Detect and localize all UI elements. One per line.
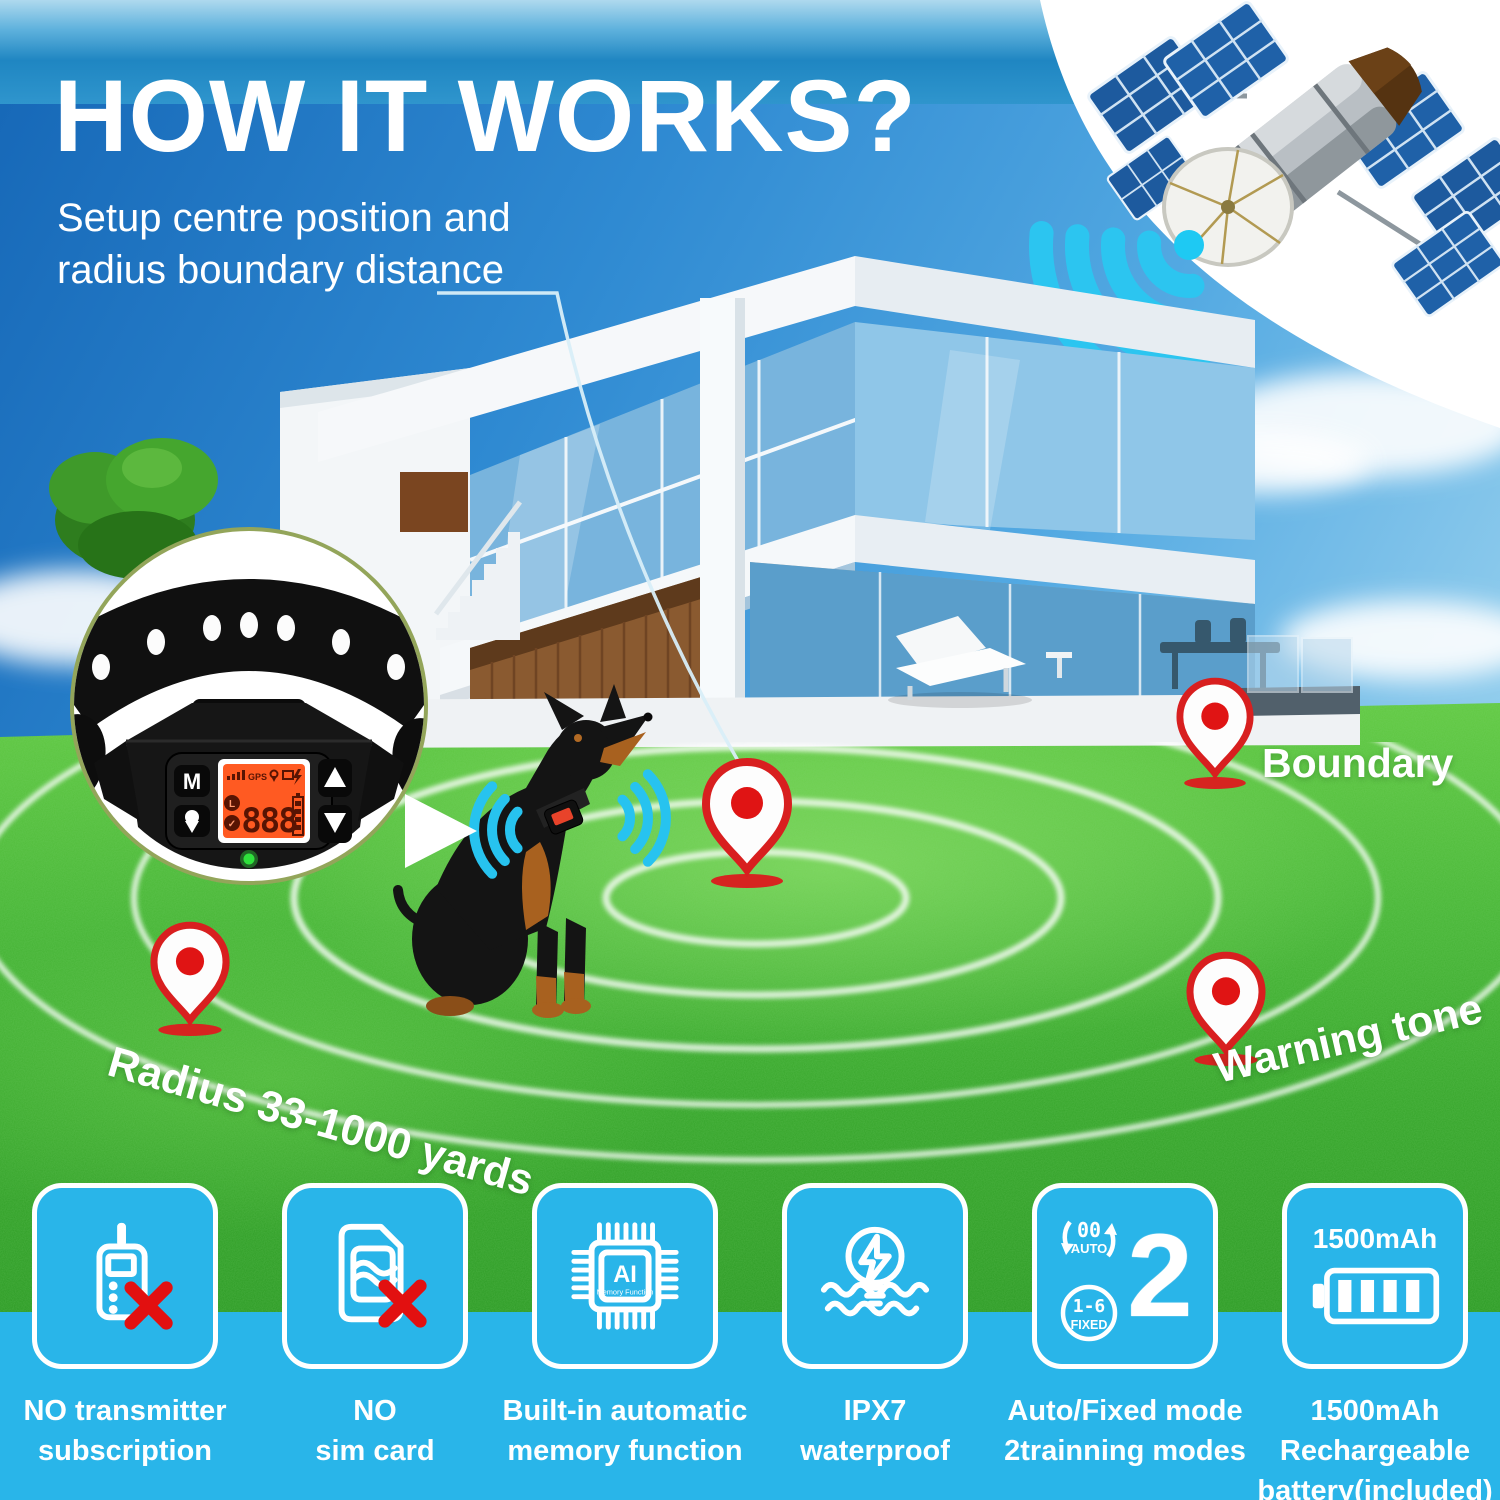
svg-text:✓: ✓ — [228, 819, 236, 830]
centre-position-pin — [706, 762, 788, 888]
feature-label: Auto/Fixed mode 2trainning modes — [1004, 1391, 1246, 1471]
feature-label: IPX7 waterproof — [800, 1391, 950, 1471]
feature-no-sim-card: NO sim card — [250, 1183, 500, 1500]
feature-label: Built-in automatic memory function — [503, 1391, 748, 1471]
feature-tile: 1500mAh — [1282, 1183, 1468, 1369]
radius-pin — [154, 925, 226, 1036]
feature-tile — [32, 1183, 218, 1369]
subtitle-line: radius boundary distance — [57, 244, 511, 296]
red-x-icon — [131, 1288, 166, 1323]
no-sim-card-icon — [316, 1217, 434, 1335]
feature-label: NO transmitter subscription — [23, 1391, 226, 1471]
chip-ai-label: AI — [613, 1262, 637, 1288]
feature-training-modes: 00 AUTO 1-6 FIXED 2 Auto/Fixed mode 2tra… — [1000, 1183, 1250, 1500]
lcd-digits: 888 — [241, 801, 297, 841]
lcd-gps-label: GPS — [248, 772, 267, 782]
boundary-pin — [1180, 681, 1250, 789]
waterproof-bulb-icon — [816, 1217, 934, 1335]
modes-icon: 00 AUTO 1-6 FIXED 2 — [1057, 1207, 1193, 1345]
modes-count: 2 — [1127, 1223, 1193, 1329]
receiver-device: M GPS L ✓ 888 — [94, 699, 404, 869]
deck-glass-railing — [1248, 636, 1352, 692]
fixed-mode-badge-icon: 1-6 FIXED — [1057, 1281, 1121, 1345]
feature-list: NO transmitter subscription NO sim card — [0, 1183, 1500, 1500]
feature-label: NO sim card — [315, 1391, 434, 1471]
feature-tile: 00 AUTO 1-6 FIXED 2 — [1032, 1183, 1218, 1369]
feature-battery: 1500mAh 1500mAh Rechargeable battery(inc… — [1250, 1183, 1500, 1500]
page-subtitle: Setup centre position and radius boundar… — [57, 192, 511, 296]
feature-tile — [282, 1183, 468, 1369]
house-illustration — [280, 256, 1360, 748]
svg-text:AUTO: AUTO — [1071, 1241, 1108, 1256]
auto-mode-badge-icon: 00 AUTO — [1057, 1207, 1121, 1271]
status-led — [244, 854, 255, 865]
battery-icon — [1309, 1263, 1441, 1329]
feature-label: 1500mAh Rechargeable battery(included) — [1257, 1391, 1492, 1500]
svg-text:FIXED: FIXED — [1071, 1318, 1108, 1332]
feature-no-transmitter: NO transmitter subscription — [0, 1183, 250, 1500]
gps-signal-dot — [1174, 230, 1204, 260]
svg-text:L: L — [229, 799, 235, 810]
ai-chip-icon: AI Memory Function — [566, 1217, 684, 1335]
feature-waterproof: IPX7 waterproof — [750, 1183, 1000, 1500]
battery-icon-group: 1500mAh — [1309, 1223, 1441, 1329]
svg-text:00: 00 — [1077, 1218, 1101, 1242]
collar-closeup-inset: M GPS L ✓ 888 — [70, 527, 428, 885]
feature-memory-function: AI Memory Function Built-in automatic me… — [500, 1183, 750, 1500]
page-title: HOW IT WORKS? — [54, 58, 917, 175]
battery-capacity: 1500mAh — [1313, 1223, 1438, 1255]
subtitle-line: Setup centre position and — [57, 192, 511, 244]
mode-button-label: M — [183, 769, 201, 794]
chip-sublabel: Memory Function — [597, 1288, 654, 1297]
infographic-canvas: M GPS L ✓ 888 — [0, 0, 1500, 1500]
boundary-label: Boundary — [1262, 740, 1453, 787]
feature-tile — [782, 1183, 968, 1369]
inset-pointer-wedge — [405, 794, 477, 868]
feature-tile: AI Memory Function — [532, 1183, 718, 1369]
svg-text:1-6: 1-6 — [1073, 1296, 1106, 1317]
collar-closeup-artwork: M GPS L ✓ 888 — [74, 531, 424, 881]
no-transmitter-icon — [66, 1217, 184, 1335]
